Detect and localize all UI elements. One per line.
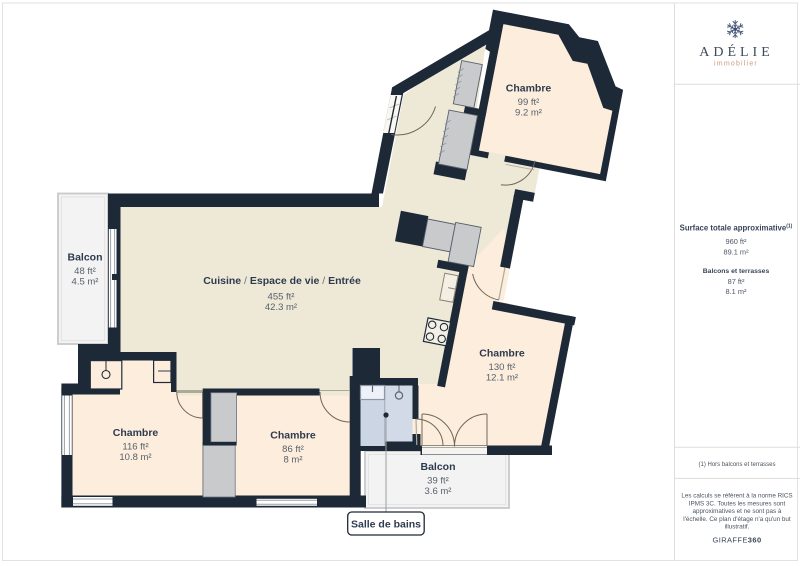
svg-text:89.1 m²: 89.1 m²: [723, 248, 749, 257]
svg-text:ADÉLIE: ADÉLIE: [699, 43, 774, 60]
svg-text:39 ft²: 39 ft²: [427, 476, 449, 487]
svg-text:l'échelle. Ce plan d'étage n'a: l'échelle. Ce plan d'étage n'a qu'un but: [683, 516, 791, 523]
svg-text:9.2 m²: 9.2 m²: [515, 108, 542, 119]
svg-text:4.5 m²: 4.5 m²: [72, 277, 99, 288]
svg-text:Chambre: Chambre: [506, 83, 552, 95]
svg-text:IPMS 3C. Toutes les mesures so: IPMS 3C. Toutes les mesures sont: [689, 500, 786, 507]
svg-text:Chambre: Chambre: [113, 427, 159, 439]
svg-text:Balcon: Balcon: [67, 252, 102, 264]
svg-text:130 ft²: 130 ft²: [489, 362, 516, 373]
svg-text:87 ft²: 87 ft²: [728, 277, 745, 286]
svg-text:Surface totale approximative(1: Surface totale approximative(1): [680, 224, 793, 233]
svg-text:8 m²: 8 m²: [284, 455, 303, 466]
svg-text:GIRAFFE360: GIRAFFE360: [712, 536, 761, 545]
svg-text:Les calculs se réfèrent à la n: Les calculs se réfèrent à la norme RICS: [681, 493, 792, 500]
svg-text:8.1 m²: 8.1 m²: [726, 287, 747, 296]
svg-text:10.8 m²: 10.8 m²: [119, 452, 151, 463]
svg-text:12.1 m²: 12.1 m²: [486, 373, 518, 384]
svg-text:Cuisine / Espace de vie / Entr: Cuisine / Espace de vie / Entrée: [203, 275, 361, 287]
svg-text:99 ft²: 99 ft²: [518, 97, 540, 108]
svg-text:116 ft²: 116 ft²: [122, 442, 148, 453]
svg-text:Chambre: Chambre: [270, 430, 316, 442]
svg-text:Balcon: Balcon: [420, 461, 455, 473]
svg-text:455 ft²: 455 ft²: [268, 292, 295, 303]
svg-text:Salle de bains: Salle de bains: [351, 519, 421, 531]
svg-text:Balcons et terrasses: Balcons et terrasses: [703, 268, 770, 275]
svg-text:Chambre: Chambre: [479, 348, 525, 360]
svg-text:3.6 m²: 3.6 m²: [425, 486, 452, 497]
svg-text:960 ft²: 960 ft²: [726, 237, 747, 246]
svg-text:immobilier: immobilier: [714, 60, 758, 67]
svg-text:(1) Hors balcons et terrasses: (1) Hors balcons et terrasses: [698, 462, 775, 468]
svg-text:48 ft²: 48 ft²: [74, 266, 96, 277]
svg-text:illustratif.: illustratif.: [725, 524, 750, 531]
svg-text:approximatives et ne sont pas: approximatives et ne sont pas à: [693, 508, 782, 515]
svg-text:86 ft²: 86 ft²: [282, 444, 304, 455]
svg-text:42.3 m²: 42.3 m²: [265, 302, 297, 313]
